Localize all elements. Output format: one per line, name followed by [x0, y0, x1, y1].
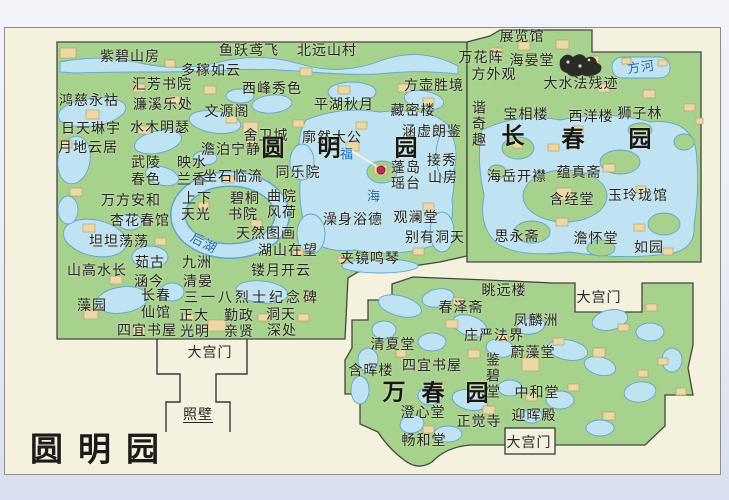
place-label: 蓬岛 [391, 160, 421, 174]
garden-name-char: 圆 [262, 137, 285, 160]
place-label: 展览馆 [500, 29, 545, 43]
place-label: 清夏堂 [371, 337, 416, 351]
place-label: 勤政 [224, 308, 254, 322]
water-name-label: 方河 [626, 59, 656, 76]
place-label: 坐石临流 [203, 169, 263, 183]
water-name-label: 福 [340, 148, 354, 161]
place-label: 九洲 [182, 255, 212, 269]
place-label: 涵今 [134, 274, 164, 288]
place-label: 三一八烈士纪念碑 [184, 290, 320, 304]
water-name-label: 海 [367, 190, 381, 203]
place-label: 夹镜鸣琴 [340, 251, 400, 265]
place-label: 西峰秀色 [242, 81, 302, 95]
place-label: 蔚藻堂 [511, 345, 556, 359]
garden-name-char: 万 [383, 381, 406, 404]
place-label: 眺远楼 [482, 283, 527, 297]
place-label: 天光 [181, 207, 211, 221]
place-label: 万方安和 [101, 193, 161, 207]
map-labels: 紫碧山房鱼跃鸢飞北远山村多稼如云汇芳书院西峰秀色方壶胜境鸿慈永祜濂溪乐处文源阁平… [0, 0, 729, 500]
place-label: 正大 [179, 308, 209, 322]
place-label: 大宫门 [188, 345, 233, 359]
place-label-vertical: 谐奇趣 [472, 100, 486, 148]
place-label: 海晏堂 [510, 53, 555, 67]
place-label: 澹怀堂 [574, 231, 619, 245]
place-label: 清晏 [183, 274, 213, 288]
place-label: 光明 [180, 324, 210, 338]
place-label: 鸿慈永祜 [59, 93, 119, 107]
place-label: 长春 [141, 288, 171, 302]
place-label: 濂溪乐处 [133, 97, 193, 111]
place-label: 映水 [177, 155, 207, 169]
garden-name-char: 春 [422, 382, 445, 405]
place-label: 中和堂 [515, 385, 560, 399]
place-label: 鱼跃鸢飞 [219, 43, 279, 57]
place-label: 方外观 [472, 67, 517, 81]
place-label: 接秀 [427, 153, 457, 167]
garden-name-char: 长 [502, 125, 525, 148]
place-label: 含晖楼 [349, 363, 394, 377]
place-label: 春色 [131, 172, 161, 186]
place-label: 日天琳宇 [61, 121, 121, 135]
place-label: 藻园 [77, 298, 107, 312]
place-label: 狮子林 [618, 106, 663, 120]
place-label: 亲贤 [224, 324, 254, 338]
place-label: 仙馆 [141, 305, 171, 319]
place-label: 四宜书屋 [117, 323, 177, 337]
place-label: 多稼如云 [181, 63, 241, 77]
place-label: 洞天 [266, 307, 296, 321]
place-label: 含经堂 [550, 192, 595, 206]
place-label: 大水法残迹 [544, 76, 619, 90]
place-label: 蕴真斋 [557, 165, 602, 179]
place-label: 风荷 [267, 205, 297, 219]
place-label: 澹泊宁静 [201, 142, 261, 156]
place-label: 宝相楼 [504, 107, 549, 121]
place-label: 深处 [267, 323, 297, 337]
place-label: 别有洞天 [405, 230, 465, 244]
place-label: 山房 [428, 170, 458, 184]
place-label: 天然图画 [236, 226, 296, 240]
place-label: 西洋楼 [569, 109, 614, 123]
place-label: 正觉寺 [457, 414, 502, 428]
place-label: 瑶台 [391, 176, 421, 190]
place-label: 春泽斋 [439, 300, 484, 314]
place-label: 庄严法界 [464, 328, 524, 342]
place-label: 坦坦荡荡 [89, 234, 149, 248]
place-label: 曲院 [267, 189, 297, 203]
map-title: 圆明园 [30, 433, 174, 466]
place-label: 上下 [182, 191, 212, 205]
map-stage: 紫碧山房鱼跃鸢飞北远山村多稼如云汇芳书院西峰秀色方壶胜境鸿慈永祜濂溪乐处文源阁平… [0, 0, 729, 500]
place-label: 凤麟洲 [514, 313, 559, 327]
place-label: 方壶胜境 [404, 78, 464, 92]
place-label: 山高水长 [67, 263, 127, 277]
place-label: 武陵 [131, 155, 161, 169]
place-label: 万花阵 [459, 50, 504, 64]
garden-name-char: 园 [629, 128, 652, 151]
place-label: 大宫门 [507, 435, 552, 449]
place-label: 同乐院 [276, 165, 321, 179]
place-label: 玉玲珑馆 [608, 188, 668, 202]
place-label: 观澜堂 [394, 210, 439, 224]
place-label: 紫碧山房 [100, 49, 160, 63]
place-label: 月地云居 [58, 140, 118, 154]
water-name-label: 后湖 [189, 231, 220, 256]
garden-name-char: 园 [466, 382, 489, 405]
place-label: 海岳开襟 [487, 169, 547, 183]
place-label: 畅和堂 [402, 433, 447, 447]
place-label: 四宜书屋 [402, 358, 462, 372]
garden-name-char: 春 [562, 128, 585, 151]
place-label: 思永斋 [495, 229, 540, 243]
place-label: 大宫门 [577, 290, 622, 304]
garden-name-char: 园 [395, 137, 418, 160]
place-label: 碧桐 [230, 191, 260, 205]
place-label: 文源阁 [205, 104, 250, 118]
place-label: 湖山在望 [258, 243, 318, 257]
place-label: 水木明瑟 [130, 120, 190, 134]
garden-name-char: 明 [318, 137, 341, 160]
place-label: 茹古 [135, 255, 165, 269]
place-label: 藏密楼 [391, 103, 436, 117]
place-label: 迎晖殿 [512, 408, 557, 422]
place-label: 汇芳书院 [132, 77, 192, 91]
place-label: 杏花春馆 [110, 213, 170, 227]
place-label: 镂月开云 [251, 263, 311, 277]
place-label: 照壁 [183, 407, 213, 421]
place-label: 书院 [228, 207, 258, 221]
place-label: 平湖秋月 [314, 97, 374, 111]
place-label: 如园 [634, 240, 664, 254]
place-label: 北远山村 [297, 43, 357, 57]
place-label: 澡身浴德 [323, 212, 383, 226]
place-label: 澄心堂 [401, 405, 446, 419]
